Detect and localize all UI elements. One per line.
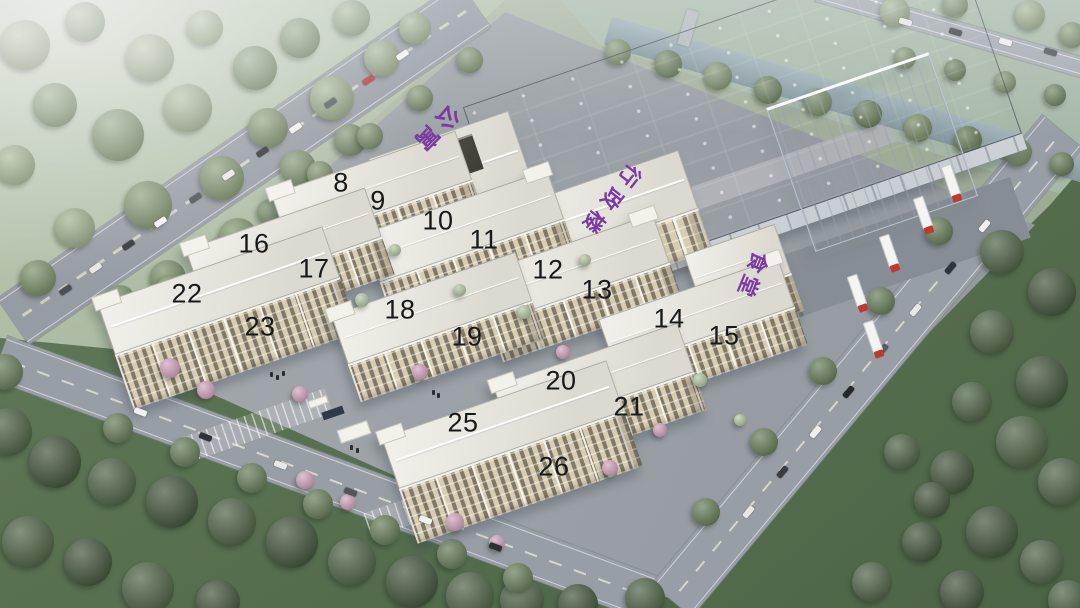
building-number-9: 9 — [370, 186, 386, 217]
building-number-15: 15 — [708, 321, 739, 352]
building-number-8: 8 — [333, 168, 349, 199]
building-number-13: 13 — [581, 275, 612, 306]
building-number-12: 12 — [532, 255, 563, 286]
building-number-19: 19 — [451, 322, 482, 353]
building-number-18: 18 — [384, 295, 415, 326]
building-number-21: 21 — [613, 392, 644, 423]
building-number-25: 25 — [447, 408, 478, 439]
building-number-22: 22 — [171, 279, 202, 310]
building-number-23: 23 — [244, 312, 275, 343]
building-number-10: 10 — [422, 206, 453, 237]
building-number-26: 26 — [538, 452, 569, 483]
building-number-11: 11 — [469, 225, 498, 256]
building-number-17: 17 — [298, 254, 329, 285]
unit-number-labels: 8 9 10 11 12 13 14 15 16 17 18 19 20 21 … — [0, 0, 1080, 608]
building-number-16: 16 — [238, 229, 269, 260]
building-number-20: 20 — [545, 366, 576, 397]
industrial-park-aerial-rendering: 8 9 10 11 12 13 14 15 16 17 18 19 20 21 … — [0, 0, 1080, 608]
building-number-14: 14 — [653, 304, 684, 335]
